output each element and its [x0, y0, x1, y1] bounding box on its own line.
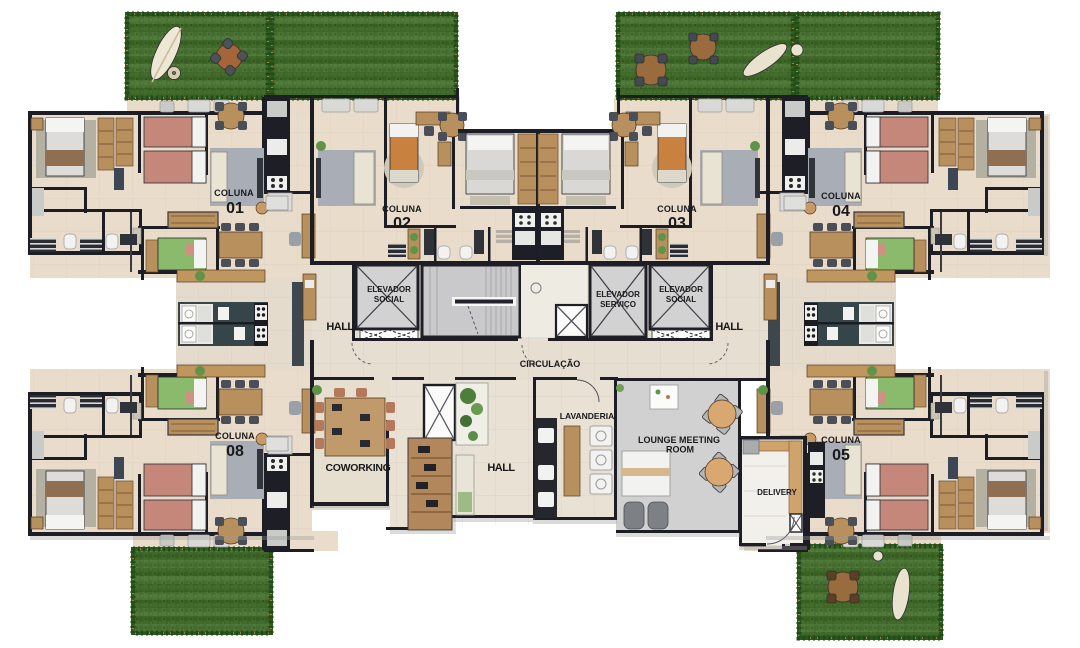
svg-text:ROOM: ROOM: [666, 445, 694, 455]
svg-text:CIRCULAÇÃO: CIRCULAÇÃO: [520, 359, 581, 369]
svg-text:COLUNA: COLUNA: [657, 204, 697, 214]
svg-text:SOCIAL: SOCIAL: [666, 295, 696, 304]
svg-text:LAVANDERIA: LAVANDERIA: [560, 411, 614, 421]
svg-text:COLUNA: COLUNA: [215, 431, 255, 441]
svg-text:02: 02: [393, 215, 411, 232]
svg-text:ELEVADOR: ELEVADOR: [659, 285, 703, 294]
svg-text:HALL: HALL: [715, 321, 743, 333]
svg-text:COLUNA: COLUNA: [821, 435, 861, 445]
svg-text:DELIVERY: DELIVERY: [757, 488, 797, 497]
svg-text:04: 04: [832, 203, 850, 220]
svg-text:ELEVADOR: ELEVADOR: [596, 290, 640, 299]
svg-text:SERVIÇO: SERVIÇO: [600, 300, 636, 309]
svg-text:COLUNA: COLUNA: [821, 191, 861, 201]
svg-text:HALL: HALL: [487, 462, 515, 474]
svg-text:08: 08: [226, 443, 244, 460]
svg-text:01: 01: [226, 200, 244, 217]
svg-text:HALL: HALL: [326, 321, 354, 333]
svg-text:COWORKING: COWORKING: [326, 462, 391, 474]
svg-text:COLUNA: COLUNA: [382, 204, 422, 214]
svg-text:LOUNGE MEETING: LOUNGE MEETING: [638, 435, 720, 445]
svg-text:SOCIAL: SOCIAL: [374, 295, 404, 304]
svg-text:COLUNA: COLUNA: [214, 188, 254, 198]
svg-text:05: 05: [832, 447, 850, 464]
svg-text:03: 03: [668, 215, 686, 232]
svg-text:ELEVADOR: ELEVADOR: [367, 285, 411, 294]
